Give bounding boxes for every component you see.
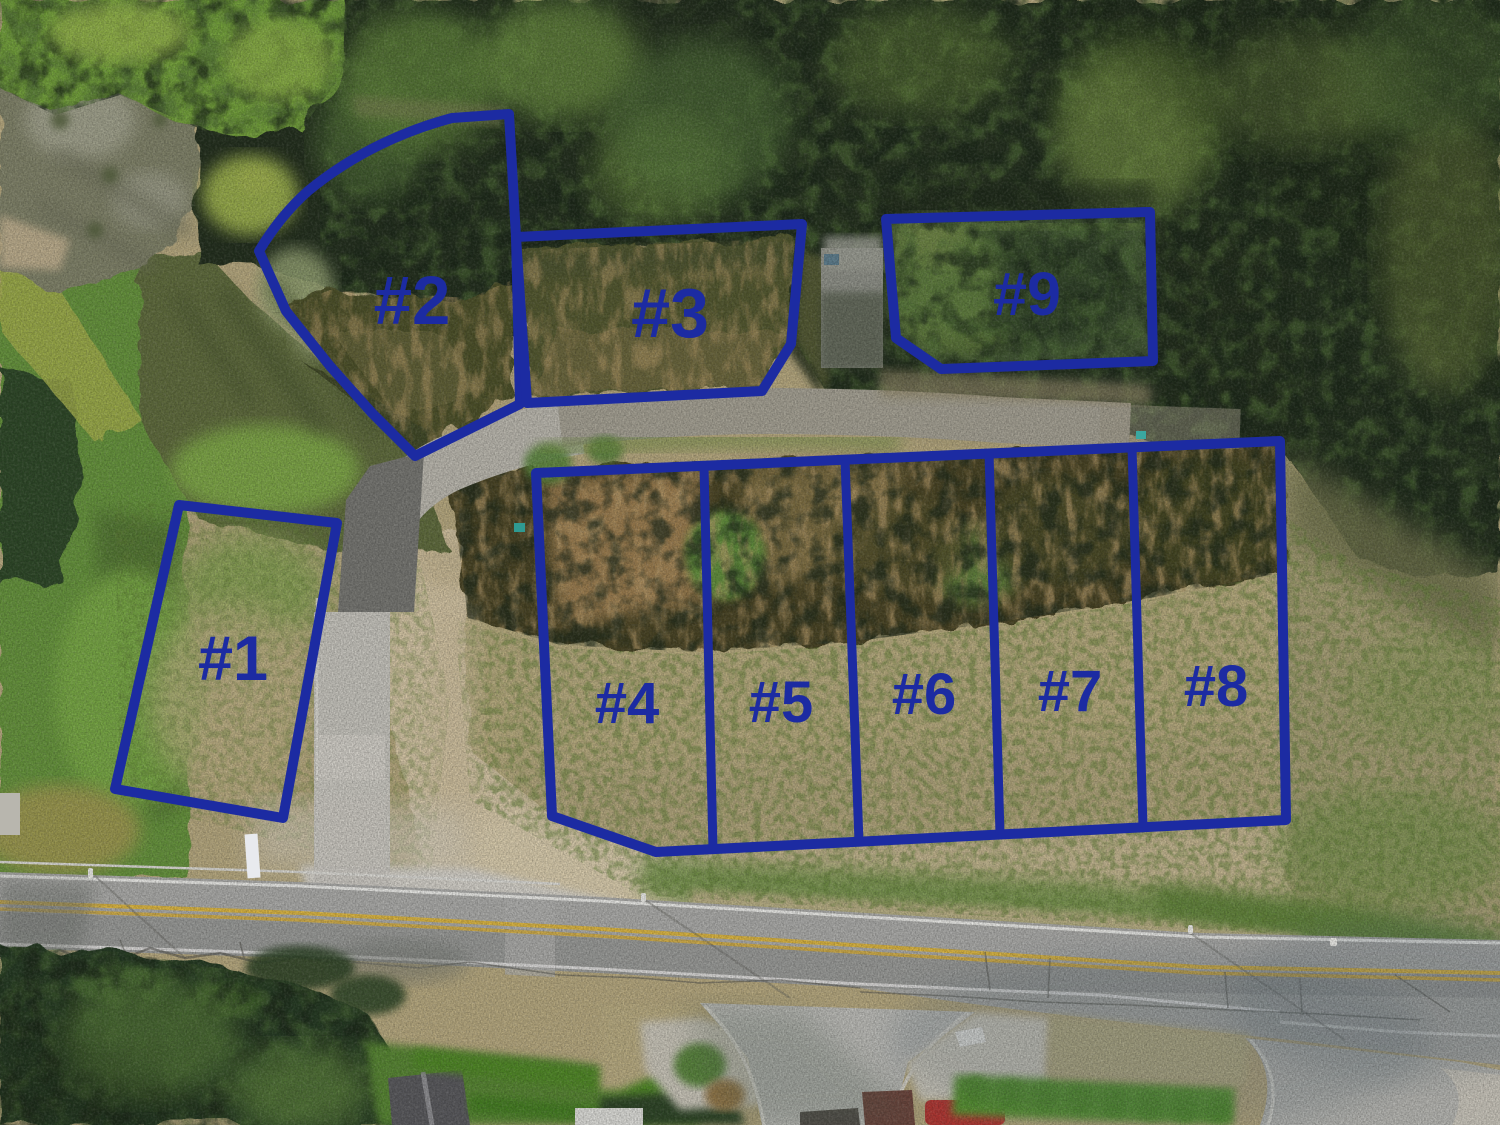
svg-text:#1: #1: [198, 624, 268, 694]
svg-text:#7: #7: [1038, 659, 1103, 724]
svg-text:#2: #2: [374, 262, 451, 339]
svg-text:#9: #9: [993, 260, 1061, 328]
svg-text:#8: #8: [1184, 654, 1249, 719]
svg-text:#3: #3: [631, 274, 709, 352]
svg-text:#4: #4: [595, 671, 660, 736]
svg-text:#6: #6: [892, 662, 957, 727]
svg-text:#5: #5: [749, 670, 814, 735]
